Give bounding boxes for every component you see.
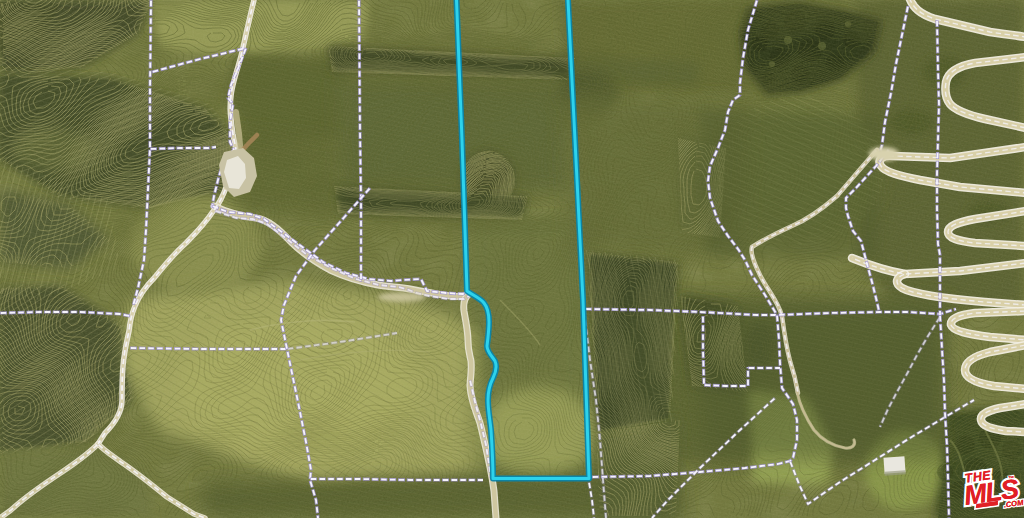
svg-text:™: ™ xyxy=(1008,475,1015,482)
